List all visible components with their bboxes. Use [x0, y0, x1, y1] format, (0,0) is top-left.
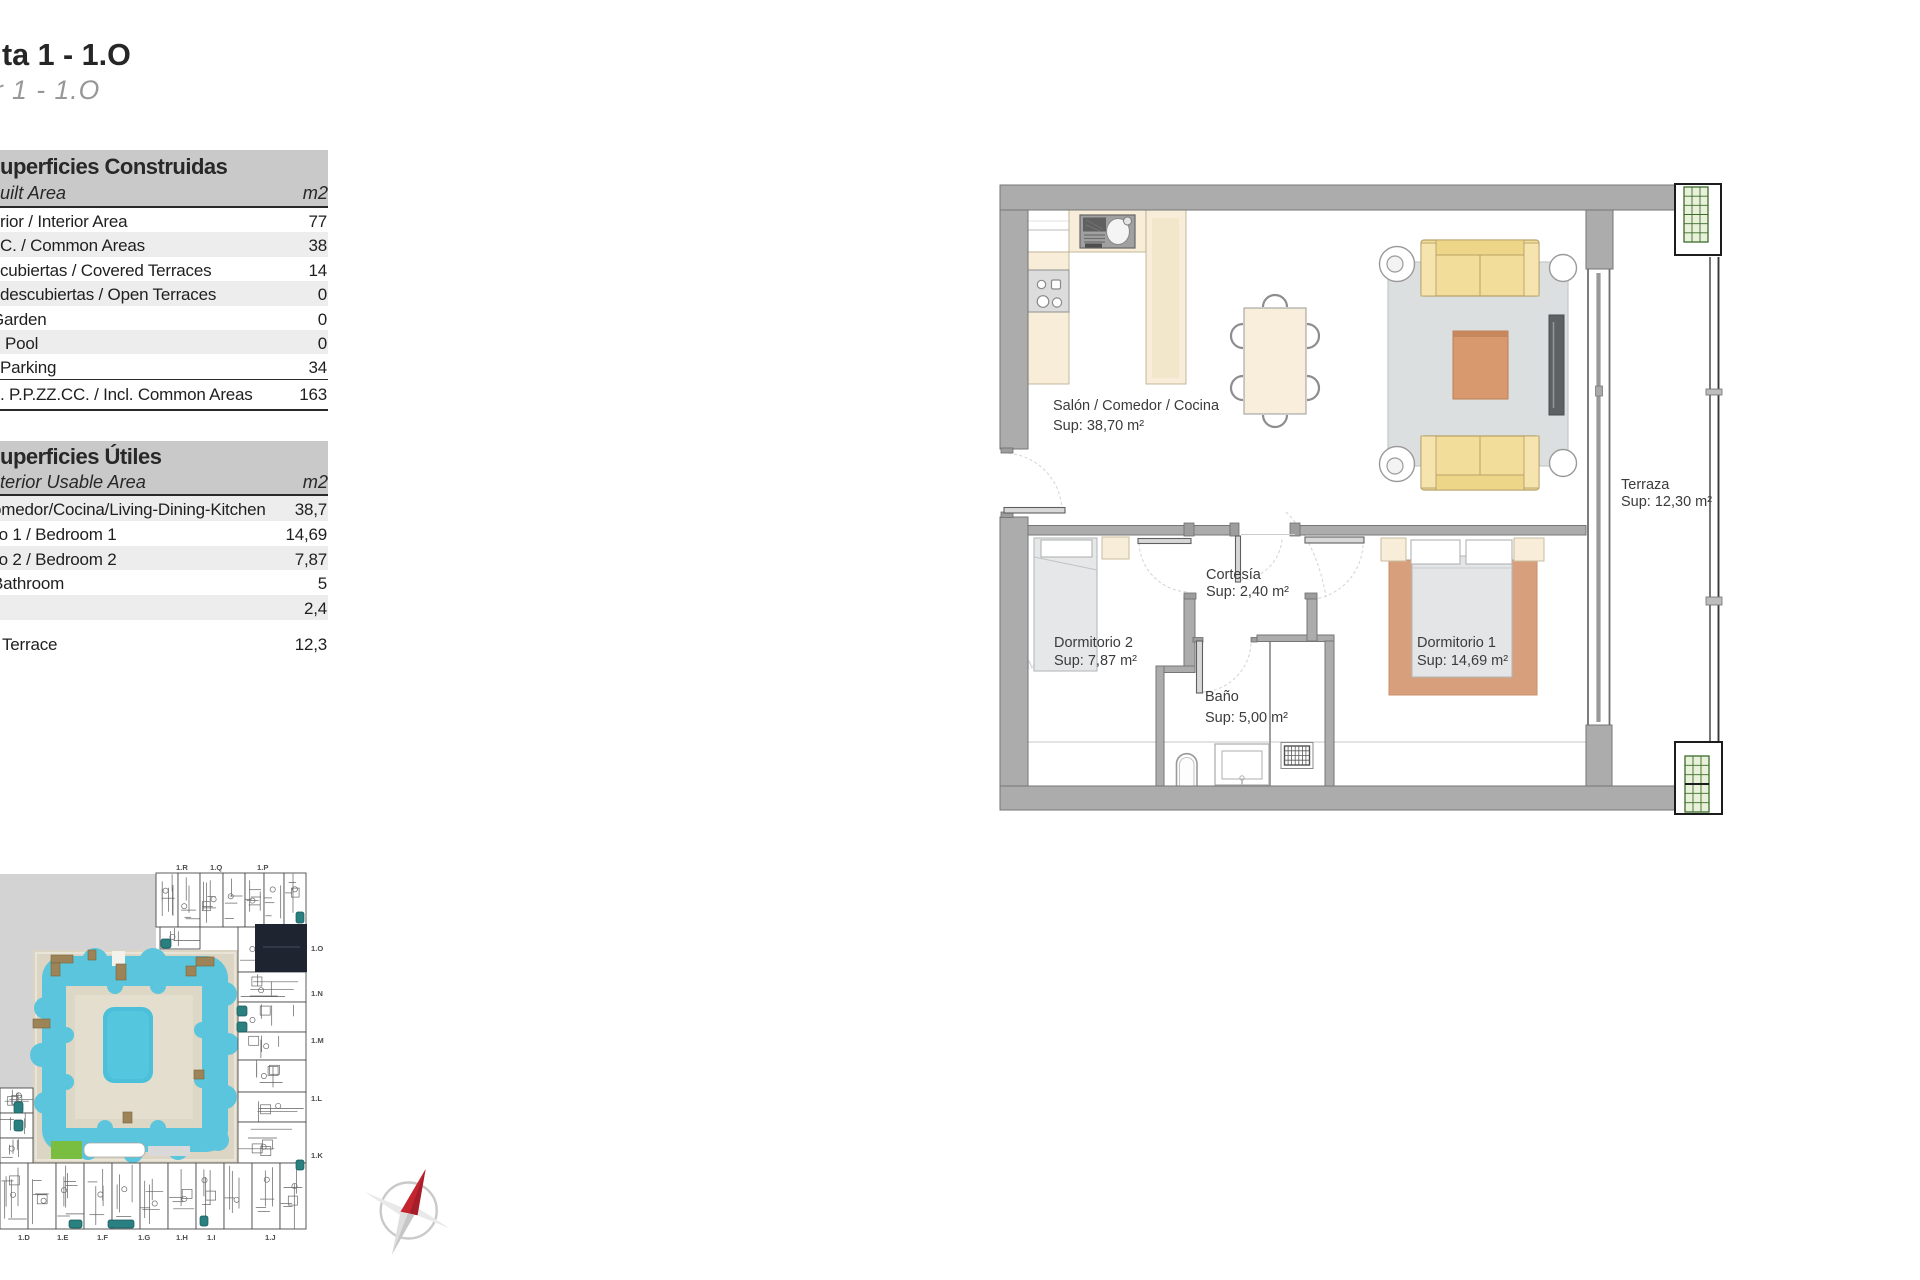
- svg-text:Terraza: Terraza: [1621, 477, 1670, 493]
- svg-text:1.Q: 1.Q: [210, 863, 222, 872]
- svg-text:1.D: 1.D: [18, 1233, 30, 1242]
- svg-text:Sup: 14,69 m²: Sup: 14,69 m²: [1417, 653, 1508, 669]
- svg-text:Cortesía: Cortesía: [1206, 567, 1262, 583]
- svg-text:Sup: 38,70 m²: Sup: 38,70 m²: [1053, 418, 1144, 434]
- svg-text:1.F: 1.F: [97, 1233, 108, 1242]
- svg-text:1.L: 1.L: [311, 1094, 322, 1103]
- svg-text:1.N: 1.N: [311, 989, 323, 998]
- svg-text:1.K: 1.K: [311, 1151, 323, 1160]
- svg-text:1.R: 1.R: [176, 863, 188, 872]
- svg-text:1.H: 1.H: [176, 1233, 188, 1242]
- svg-text:1.J: 1.J: [265, 1233, 276, 1242]
- svg-text:1.E: 1.E: [57, 1233, 68, 1242]
- svg-text:1.M: 1.M: [311, 1036, 324, 1045]
- svg-text:Dormitorio 2: Dormitorio 2: [1054, 635, 1133, 651]
- svg-text:Baño: Baño: [1205, 689, 1239, 705]
- svg-text:1.P: 1.P: [257, 863, 268, 872]
- svg-text:Sup: 5,00 m²: Sup: 5,00 m²: [1205, 710, 1288, 726]
- svg-text:Sup: 12,30 m²: Sup: 12,30 m²: [1621, 494, 1712, 510]
- svg-text:Dormitorio 1: Dormitorio 1: [1417, 635, 1496, 651]
- svg-text:Sup: 7,87 m²: Sup: 7,87 m²: [1054, 653, 1137, 669]
- svg-text:1.G: 1.G: [138, 1233, 150, 1242]
- svg-text:Salón / Comedor / Cocina: Salón / Comedor / Cocina: [1053, 398, 1220, 414]
- svg-text:1.I: 1.I: [207, 1233, 215, 1242]
- svg-text:1.O: 1.O: [311, 944, 323, 953]
- svg-text:Sup: 2,40 m²: Sup: 2,40 m²: [1206, 584, 1289, 600]
